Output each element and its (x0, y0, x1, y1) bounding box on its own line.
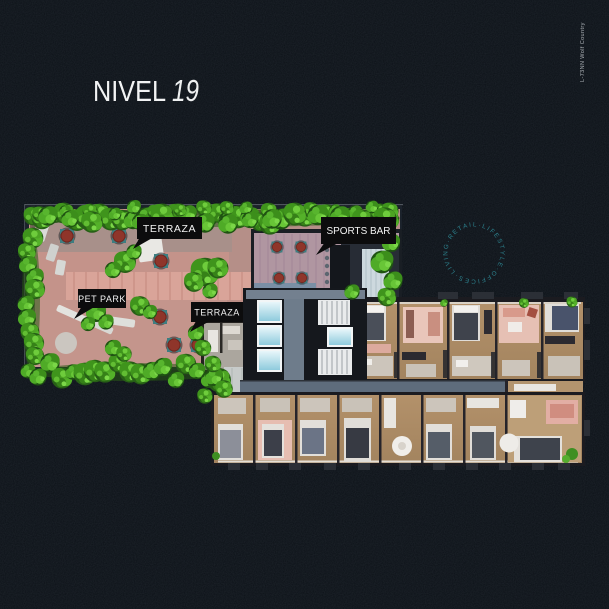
svg-text:NIVEL: NIVEL (93, 76, 166, 108)
svg-text:L-73NN Wolf Country: L-73NN Wolf Country (580, 22, 586, 82)
svg-text:SPORTS BAR: SPORTS BAR (327, 225, 391, 237)
svg-text:TERRAZA: TERRAZA (194, 308, 240, 318)
svg-text:19: 19 (172, 73, 199, 108)
svg-text:TERRAZA: TERRAZA (143, 223, 196, 235)
svg-text:PET PARK: PET PARK (78, 294, 126, 304)
